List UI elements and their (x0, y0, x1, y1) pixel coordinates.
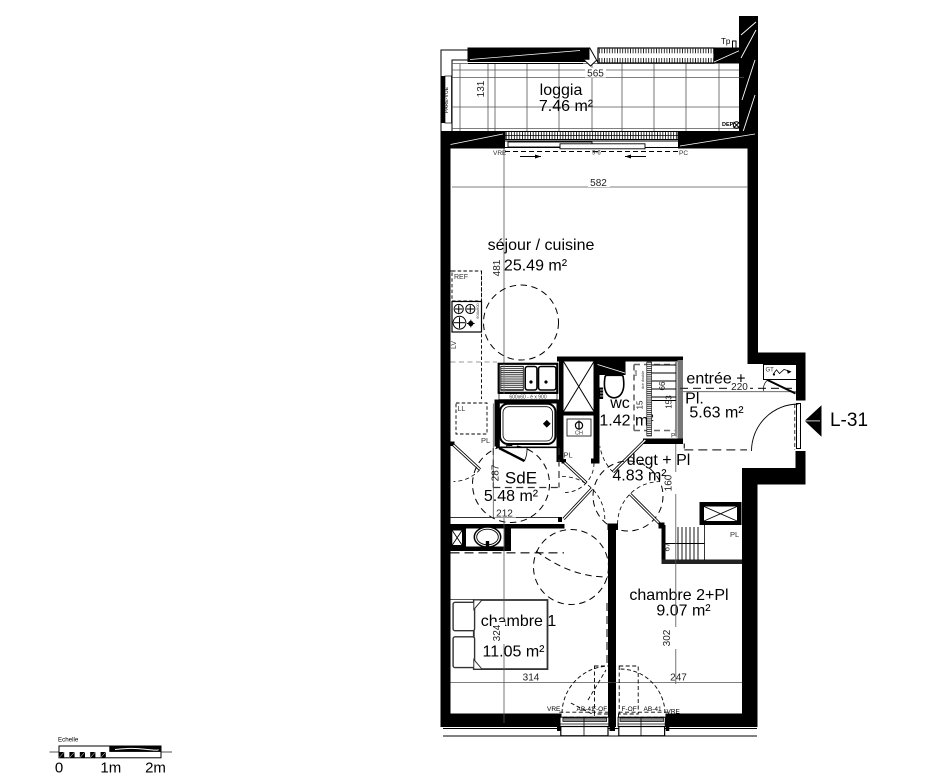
svg-text:VRE: VRE (547, 706, 561, 713)
svg-text:9-6: 9-6 (592, 151, 601, 157)
svg-text:PL: PL (564, 451, 573, 460)
svg-text:F-OF: F-OF (622, 706, 637, 713)
svg-text:entrée +: entrée + (686, 371, 745, 388)
svg-text:324: 324 (492, 624, 503, 641)
svg-text:131: 131 (476, 80, 487, 97)
svg-text:582: 582 (590, 178, 607, 189)
svg-text:Tp: Tp (721, 37, 731, 46)
svg-text:GT: GT (766, 368, 775, 374)
svg-text:314: 314 (523, 672, 540, 683)
svg-text:AB-41: AB-41 (644, 706, 662, 713)
svg-text:600x600: 600x600 (475, 303, 480, 319)
svg-text:VRE: VRE (493, 150, 507, 157)
svg-text:7.46 m²: 7.46 m² (539, 98, 594, 115)
svg-text:15: 15 (636, 400, 645, 409)
svg-text:481: 481 (492, 259, 503, 276)
svg-text:5.63 m²: 5.63 m² (689, 405, 744, 422)
svg-text:CH: CH (575, 431, 583, 437)
svg-text:66: 66 (658, 381, 667, 390)
svg-text:VRE: VRE (667, 709, 681, 716)
svg-text:11.05 m²: 11.05 m² (483, 644, 546, 661)
svg-text:PC: PC (679, 150, 688, 157)
svg-text:302: 302 (662, 629, 673, 646)
svg-text:SdE: SdE (505, 469, 537, 488)
svg-text:L-31: L-31 (830, 410, 868, 431)
svg-text:LL: LL (458, 406, 466, 413)
svg-text:wc: wc (609, 395, 630, 412)
svg-text:1m: 1m (100, 760, 121, 777)
svg-text:REF: REF (454, 274, 468, 281)
svg-text:153: 153 (665, 395, 674, 409)
svg-text:DEP: DEP (722, 122, 734, 128)
svg-text:160: 160 (664, 474, 675, 491)
svg-text:dce double: dce double (641, 371, 645, 390)
svg-text:0: 0 (55, 760, 63, 777)
svg-text:287: 287 (491, 464, 502, 481)
svg-text:5.48 m²: 5.48 m² (484, 488, 539, 505)
svg-text:67: 67 (663, 542, 672, 551)
svg-text:Echelle: Echelle (58, 737, 79, 744)
svg-text:loggia: loggia (540, 82, 583, 99)
svg-text:PL: PL (481, 436, 490, 445)
svg-text:565: 565 (587, 69, 604, 80)
svg-text:247: 247 (670, 672, 687, 683)
svg-text:PL: PL (730, 530, 739, 539)
svg-text:Pl: Pl (671, 433, 677, 440)
svg-text:séjour / cuisine: séjour / cuisine (488, 237, 595, 254)
svg-text:25.49 m²: 25.49 m² (504, 258, 568, 275)
svg-text:LV: LV (451, 341, 458, 349)
svg-text:212: 212 (496, 509, 513, 520)
svg-text:F-OF: F-OF (592, 706, 607, 713)
svg-text:bâti: bâti (634, 370, 638, 376)
svg-text:2m: 2m (145, 760, 166, 777)
svg-text:chambre 2+Pl: chambre 2+Pl (629, 587, 728, 604)
svg-text:PARE-VUE: PARE-VUE (444, 86, 450, 113)
svg-text:degt + Pl: degt + Pl (627, 452, 691, 469)
svg-text:9.07 m²: 9.07 m² (656, 603, 711, 620)
svg-text:1.42 m²: 1.42 m² (599, 413, 654, 430)
